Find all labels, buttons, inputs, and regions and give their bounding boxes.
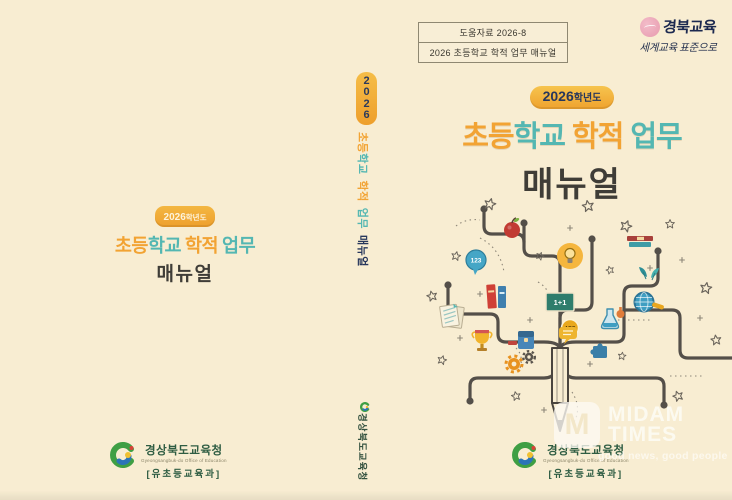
publisher-name: 경상북도교육청 — [141, 442, 227, 458]
watermark-name: MIDAM TIMES — [608, 405, 684, 445]
publisher-g-icon — [110, 442, 136, 468]
apple-icon — [504, 217, 520, 238]
magnifier-globe-icon — [635, 293, 665, 312]
front-cover-title-block: 2026학년도 초등학교학적업무 매뉴얼 — [436, 86, 708, 206]
chalkboard-icon: 1+1 — [546, 293, 574, 311]
brand-logo: 경북교육 세계교육 표준으로 — [630, 16, 726, 55]
brand-name: 경북교육 — [662, 16, 717, 37]
publisher-department: [유초등교육과] — [141, 466, 227, 480]
page-bottom-shadow — [0, 490, 732, 500]
flask-icon — [602, 307, 625, 329]
publisher-logo-left: 경상북도교육청 Gyeongsangbuk-do Office of Educa… — [110, 442, 227, 480]
book-stack-icon — [627, 236, 653, 247]
back-cover-subtitle: 매뉴얼 — [95, 259, 275, 286]
gear-icon — [506, 351, 535, 372]
front-cover-title: 초등학교학적업무 — [436, 113, 708, 155]
back-year-badge: 2026학년도 — [155, 206, 216, 227]
doc-title: 2026 초등학교 학적 업무 매뉴얼 — [419, 43, 567, 62]
svg-text:123: 123 — [471, 258, 482, 265]
books-icon — [486, 284, 506, 309]
trophy-icon — [472, 330, 492, 351]
publisher-g-icon — [512, 442, 538, 468]
header-box: 도움자료 2026-8 2026 초등학교 학적 업무 매뉴얼 — [418, 22, 568, 63]
spine-year-badge: 2026 — [356, 72, 377, 125]
back-cover-title-block: 2026학년도 초등학교학적업무 매뉴얼 — [95, 206, 275, 286]
publisher-name-en: Gyeongsangbuk-do Office of Education — [141, 458, 227, 463]
brand-stamp-icon — [640, 17, 660, 37]
counter-123-icon: 123 — [466, 250, 486, 275]
brand-tagline: 세계교육 표준으로 — [630, 40, 726, 55]
book-cover-spread: { "page": { "background": "#f8edd2" }, "… — [0, 0, 732, 500]
publisher-department: [유초등교육과] — [543, 466, 629, 480]
doc-number: 도움자료 2026-8 — [419, 23, 567, 43]
front-year-badge: 2026학년도 — [530, 86, 615, 109]
watermark-tagline: good news, good people — [598, 450, 732, 462]
leaves-icon — [639, 267, 659, 280]
puzzle-icon — [590, 343, 607, 358]
documents-icon — [440, 303, 465, 328]
back-cover-title: 초등학교학적업무 — [95, 232, 275, 258]
watermark: M MIDAM TIMES good news, good people — [554, 402, 732, 462]
lightbulb-icon — [557, 243, 583, 269]
school-bag-icon — [508, 331, 534, 349]
svg-text:1+1: 1+1 — [554, 298, 567, 307]
midam-logo-icon: M — [554, 402, 600, 448]
